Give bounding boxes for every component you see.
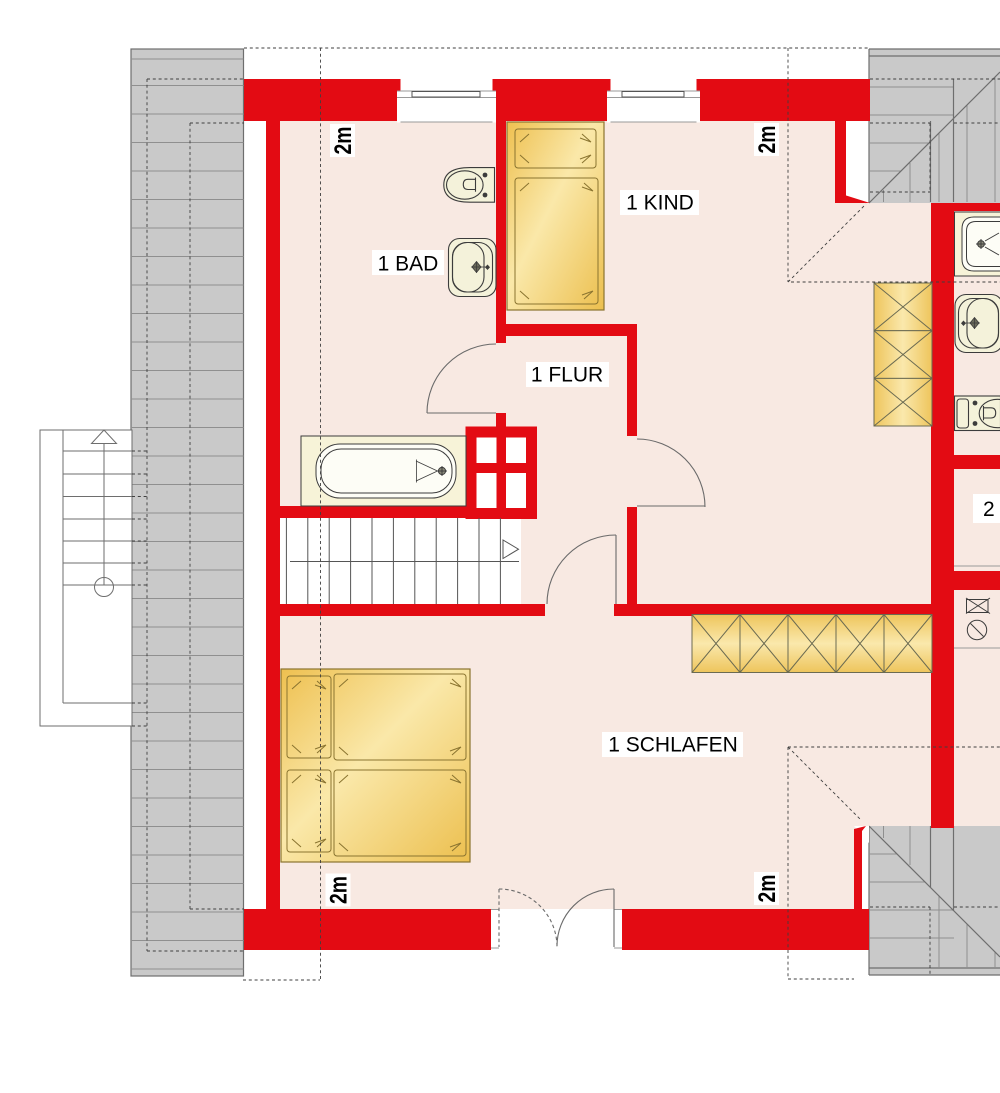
svg-text:2: 2 [983,498,995,521]
svg-text:1 BAD: 1 BAD [378,252,439,275]
svg-text:2m: 2m [754,126,781,154]
svg-text:2m: 2m [325,876,352,904]
svg-text:1 SCHLAFEN: 1 SCHLAFEN [608,733,738,756]
svg-text:1 KIND: 1 KIND [626,191,694,214]
svg-text:2m: 2m [330,127,357,155]
svg-text:1 FLUR: 1 FLUR [531,363,603,386]
svg-text:2m: 2m [754,875,781,903]
